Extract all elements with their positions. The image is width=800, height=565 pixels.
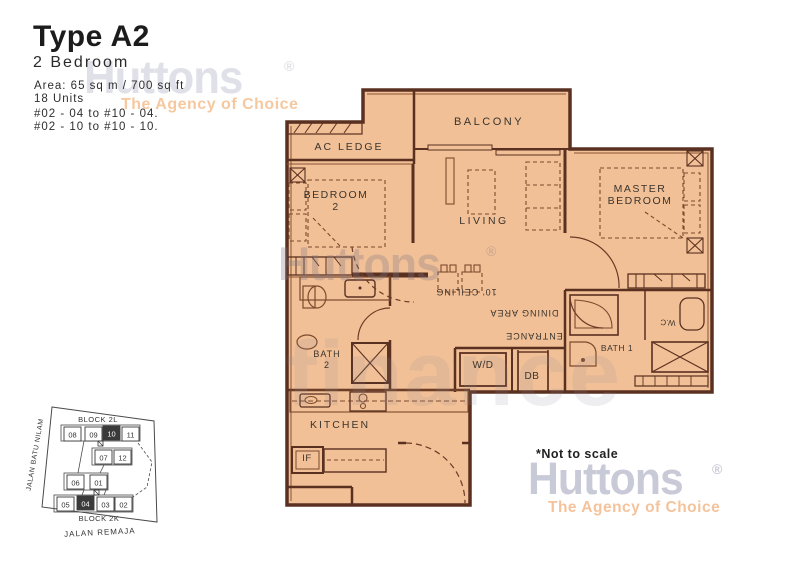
siteplan-unit-label: 01 (94, 479, 102, 488)
script-watermark: finance (286, 322, 622, 427)
site-plan: 080910110712060105040302 BLOCK 2L BLOCK … (26, 407, 157, 539)
rotated-label-ceiling: 10' CEILING (435, 287, 496, 297)
siteplan-unit-label: 12 (118, 454, 126, 463)
siteplan-block-bottom-label: BLOCK 2K (79, 514, 120, 523)
bath1-label: BATH 1 (601, 343, 633, 353)
siteplan-unit-label: 05 (61, 501, 69, 510)
rotated-label-dining: DINING AREA (489, 308, 558, 318)
siteplan-block-top-label: BLOCK 2L (78, 415, 118, 424)
siteplan-road-left-label: JALAN BATU NILAM (26, 418, 46, 491)
siteplan-unit-label: 08 (68, 431, 76, 440)
kitchen-label: KITCHEN (310, 419, 370, 431)
siteplan-unit-label: 02 (119, 501, 127, 510)
siteplan-unit-label: 07 (99, 454, 107, 463)
siteplan-unit-label: 10 (107, 430, 115, 439)
siteplan-road-bottom-label: JALAN REMAJA (64, 526, 136, 539)
bedroom2-label: BEDROOM2 (304, 189, 369, 213)
bath2-label: BATH2 (313, 349, 340, 371)
db-box-label: DB (525, 371, 540, 382)
siteplan-unit-label: 03 (101, 501, 109, 510)
siteplan-unit-label: 09 (89, 431, 97, 440)
wc-label: W.C (660, 317, 676, 327)
registered-mark-icon: ® (486, 243, 496, 259)
siteplan-unit-label: 04 (81, 500, 89, 509)
floorplan-flyer: Huttons ® The Agency of Choice Type A2 2… (0, 0, 800, 565)
washer-dryer-label: W/D (473, 360, 494, 371)
rotated-label-entrance: ENTRANCE (505, 331, 563, 341)
siteplan-unit-label: 06 (71, 479, 79, 488)
balcony-label: BALCONY (454, 116, 524, 128)
ac-ledge-label: AC LEDGE (314, 141, 383, 153)
master-bedroom-label: MASTERBEDROOM (608, 183, 673, 207)
siteplan-unit-label: 11 (127, 431, 135, 440)
living-label: LIVING (459, 215, 508, 227)
huttons-watermark-center: Huttons (278, 236, 440, 291)
fridge-label: IF (302, 453, 311, 464)
